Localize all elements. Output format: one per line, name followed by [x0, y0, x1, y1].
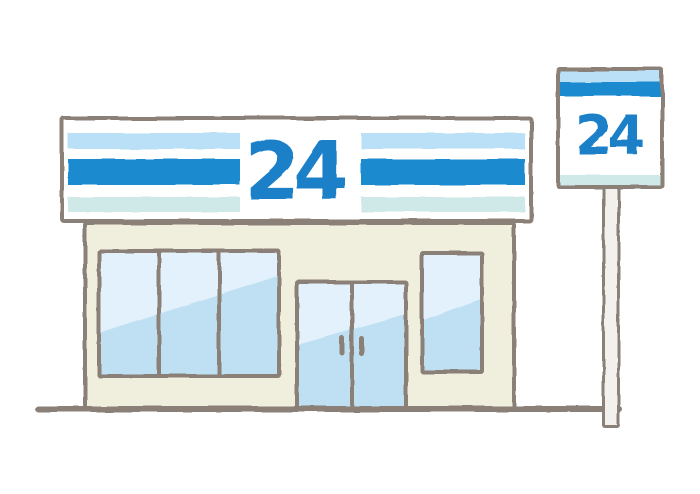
door-handle-left [340, 336, 345, 356]
window-pane-divider [217, 253, 221, 374]
storefront-window-right [420, 251, 484, 374]
convenience-store-illustration: 24 24 [0, 0, 700, 494]
storefront-window-left [97, 249, 281, 378]
pole-stripe-light-blue [560, 71, 660, 82]
entrance-door [295, 280, 408, 410]
sign-pole [602, 186, 620, 428]
pole-stripe-blue [560, 82, 660, 96]
sign-number-24: 24 [64, 120, 529, 219]
pole-sign: 24 [556, 67, 664, 189]
door-center-divider [350, 284, 354, 406]
pole-sign-middle: 24 [560, 96, 660, 175]
door-handle-right [359, 336, 364, 356]
window-pane-divider [157, 253, 161, 374]
storefront-sign: 24 [60, 116, 533, 223]
pole-stripe-pale-cyan [560, 175, 660, 185]
pole-sign-number-24: 24 [580, 104, 640, 167]
